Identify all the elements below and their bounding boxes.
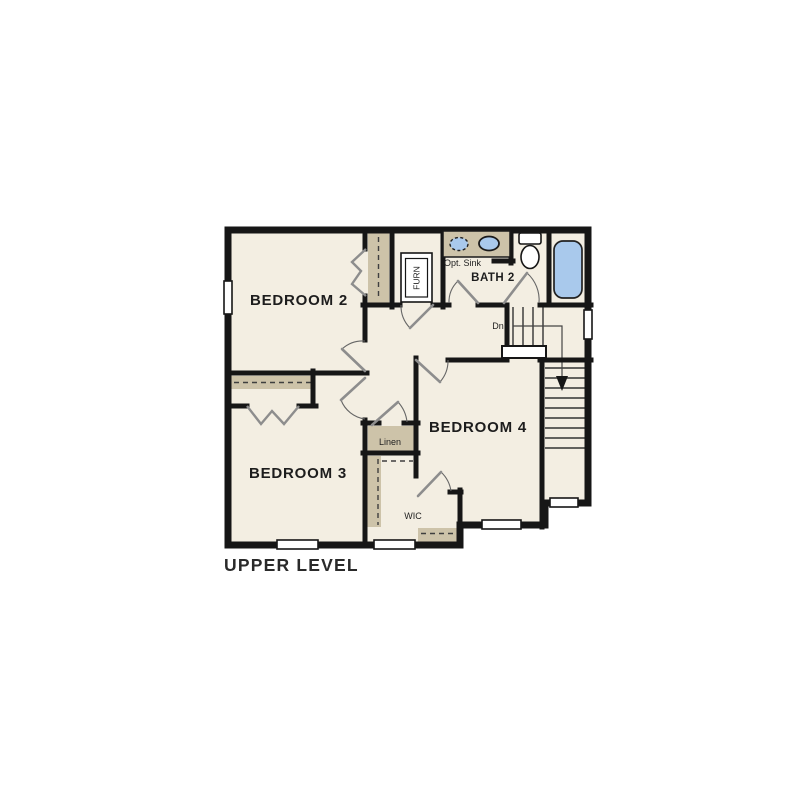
- room-stairwell: [507, 307, 586, 501]
- room-furnace-closet: [395, 233, 440, 304]
- room-wic: [368, 456, 458, 542]
- bath2-label: BATH 2: [471, 272, 515, 284]
- plan-title: UPPER LEVEL: [224, 555, 359, 575]
- room-bath-2: [446, 234, 586, 302]
- bedroom2-label: BEDROOM 2: [250, 292, 348, 309]
- floor-plan-drawing: FURN BEDROOM 2 BEDROOM 3 BEDROOM 4 BATH …: [0, 0, 810, 810]
- wic-label: WIC: [404, 511, 422, 521]
- bedroom4-label: BEDROOM 4: [429, 419, 527, 436]
- linen-label: Linen: [379, 437, 401, 447]
- stairs-down-label: Dn: [492, 321, 504, 331]
- opt-sink-label: Opt. Sink: [444, 258, 482, 268]
- bedroom2-window: [224, 281, 232, 314]
- floor-plan-page: FURN BEDROOM 2 BEDROOM 3 BEDROOM 4 BATH …: [0, 0, 810, 810]
- bedroom3-label: BEDROOM 3: [249, 465, 347, 482]
- room-hall: [368, 308, 503, 420]
